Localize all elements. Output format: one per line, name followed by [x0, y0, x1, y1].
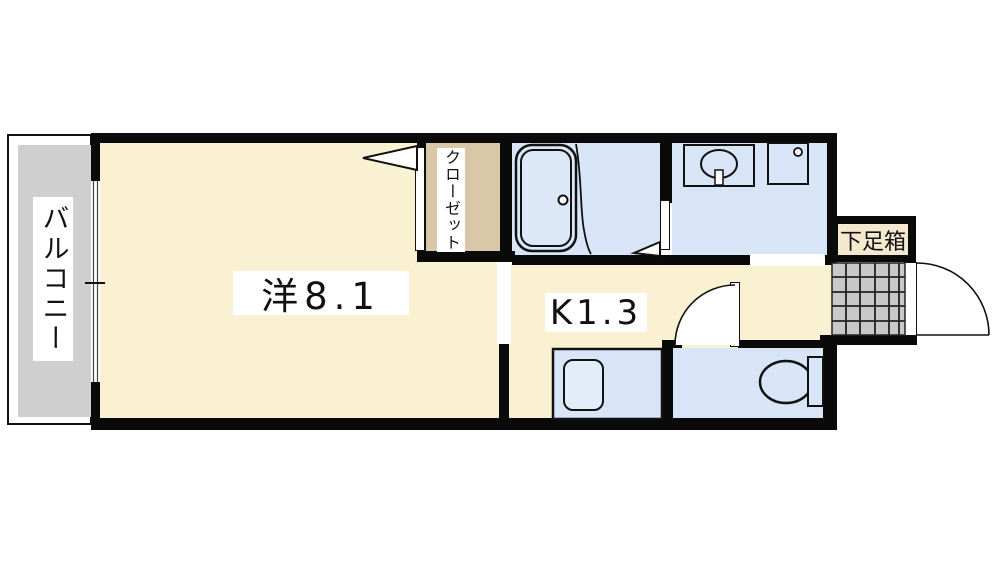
kitchen-label: K1.3 [545, 293, 647, 332]
shoe-box-label: 下足箱 [838, 224, 908, 255]
bath-drain-icon [559, 196, 568, 205]
entrance-door-arc [917, 263, 989, 335]
washing-machine-pan-icon [768, 143, 808, 184]
fixtures-layer [0, 0, 1000, 562]
main-room-label: 洋8.1 [233, 271, 409, 315]
sliding-window [85, 181, 105, 382]
toilet-icon [760, 357, 823, 406]
faucet-icon [715, 170, 723, 185]
washbasin-icon [684, 145, 754, 186]
toilet-door-arc [675, 285, 735, 345]
entrance-tile-grid [832, 263, 905, 335]
closet-label: クローゼット [437, 148, 465, 252]
balcony-label: バルコニー [33, 197, 73, 361]
bathroom-door-wedge [634, 242, 660, 256]
bathtub-icon [516, 144, 591, 254]
floor-plan: バルコニー 洋8.1 クローゼット K1.3 下足箱 [0, 0, 1000, 562]
closet-door-wedge [363, 146, 417, 170]
kitchen-sink-icon [553, 349, 662, 419]
